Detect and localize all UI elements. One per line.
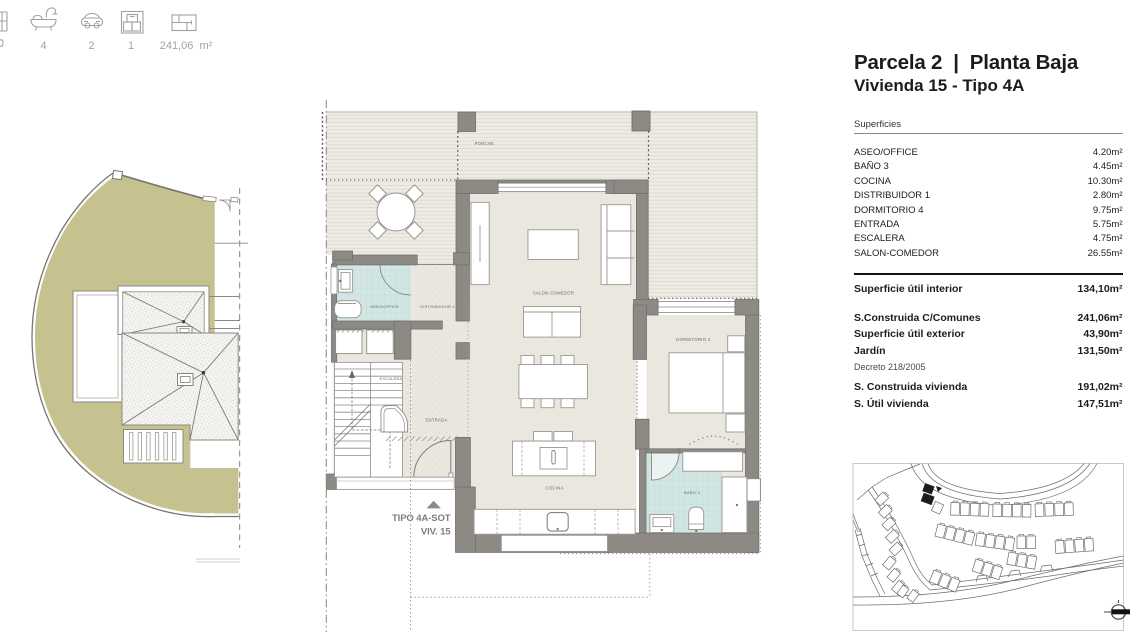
svg-text:ESCALERA: ESCALERA	[380, 377, 403, 381]
svg-text:241,06 m²: 241,06 m²	[160, 40, 213, 52]
svg-text:PORCHE: PORCHE	[475, 141, 495, 146]
svg-text:2: 2	[88, 40, 94, 52]
svg-text:BAÑO 3: BAÑO 3	[684, 490, 700, 495]
svg-text:COCINA: COCINA	[546, 485, 564, 490]
svg-text:ENTRADA: ENTRADA	[425, 418, 447, 423]
svg-text:VIV. 15: VIV. 15	[421, 527, 451, 538]
svg-text:SALON-COMEDOR: SALON-COMEDOR	[533, 290, 574, 295]
svg-text:TIPO 4A-SOT: TIPO 4A-SOT	[392, 513, 451, 524]
svg-text:1: 1	[128, 40, 134, 52]
svg-text:ASEO/OFFICE: ASEO/OFFICE	[370, 305, 399, 309]
svg-text:4: 4	[40, 40, 46, 52]
svg-text:DORMITORIO 4: DORMITORIO 4	[676, 337, 711, 342]
svg-text:DISTRIBUIDOR 1: DISTRIBUIDOR 1	[420, 305, 455, 309]
